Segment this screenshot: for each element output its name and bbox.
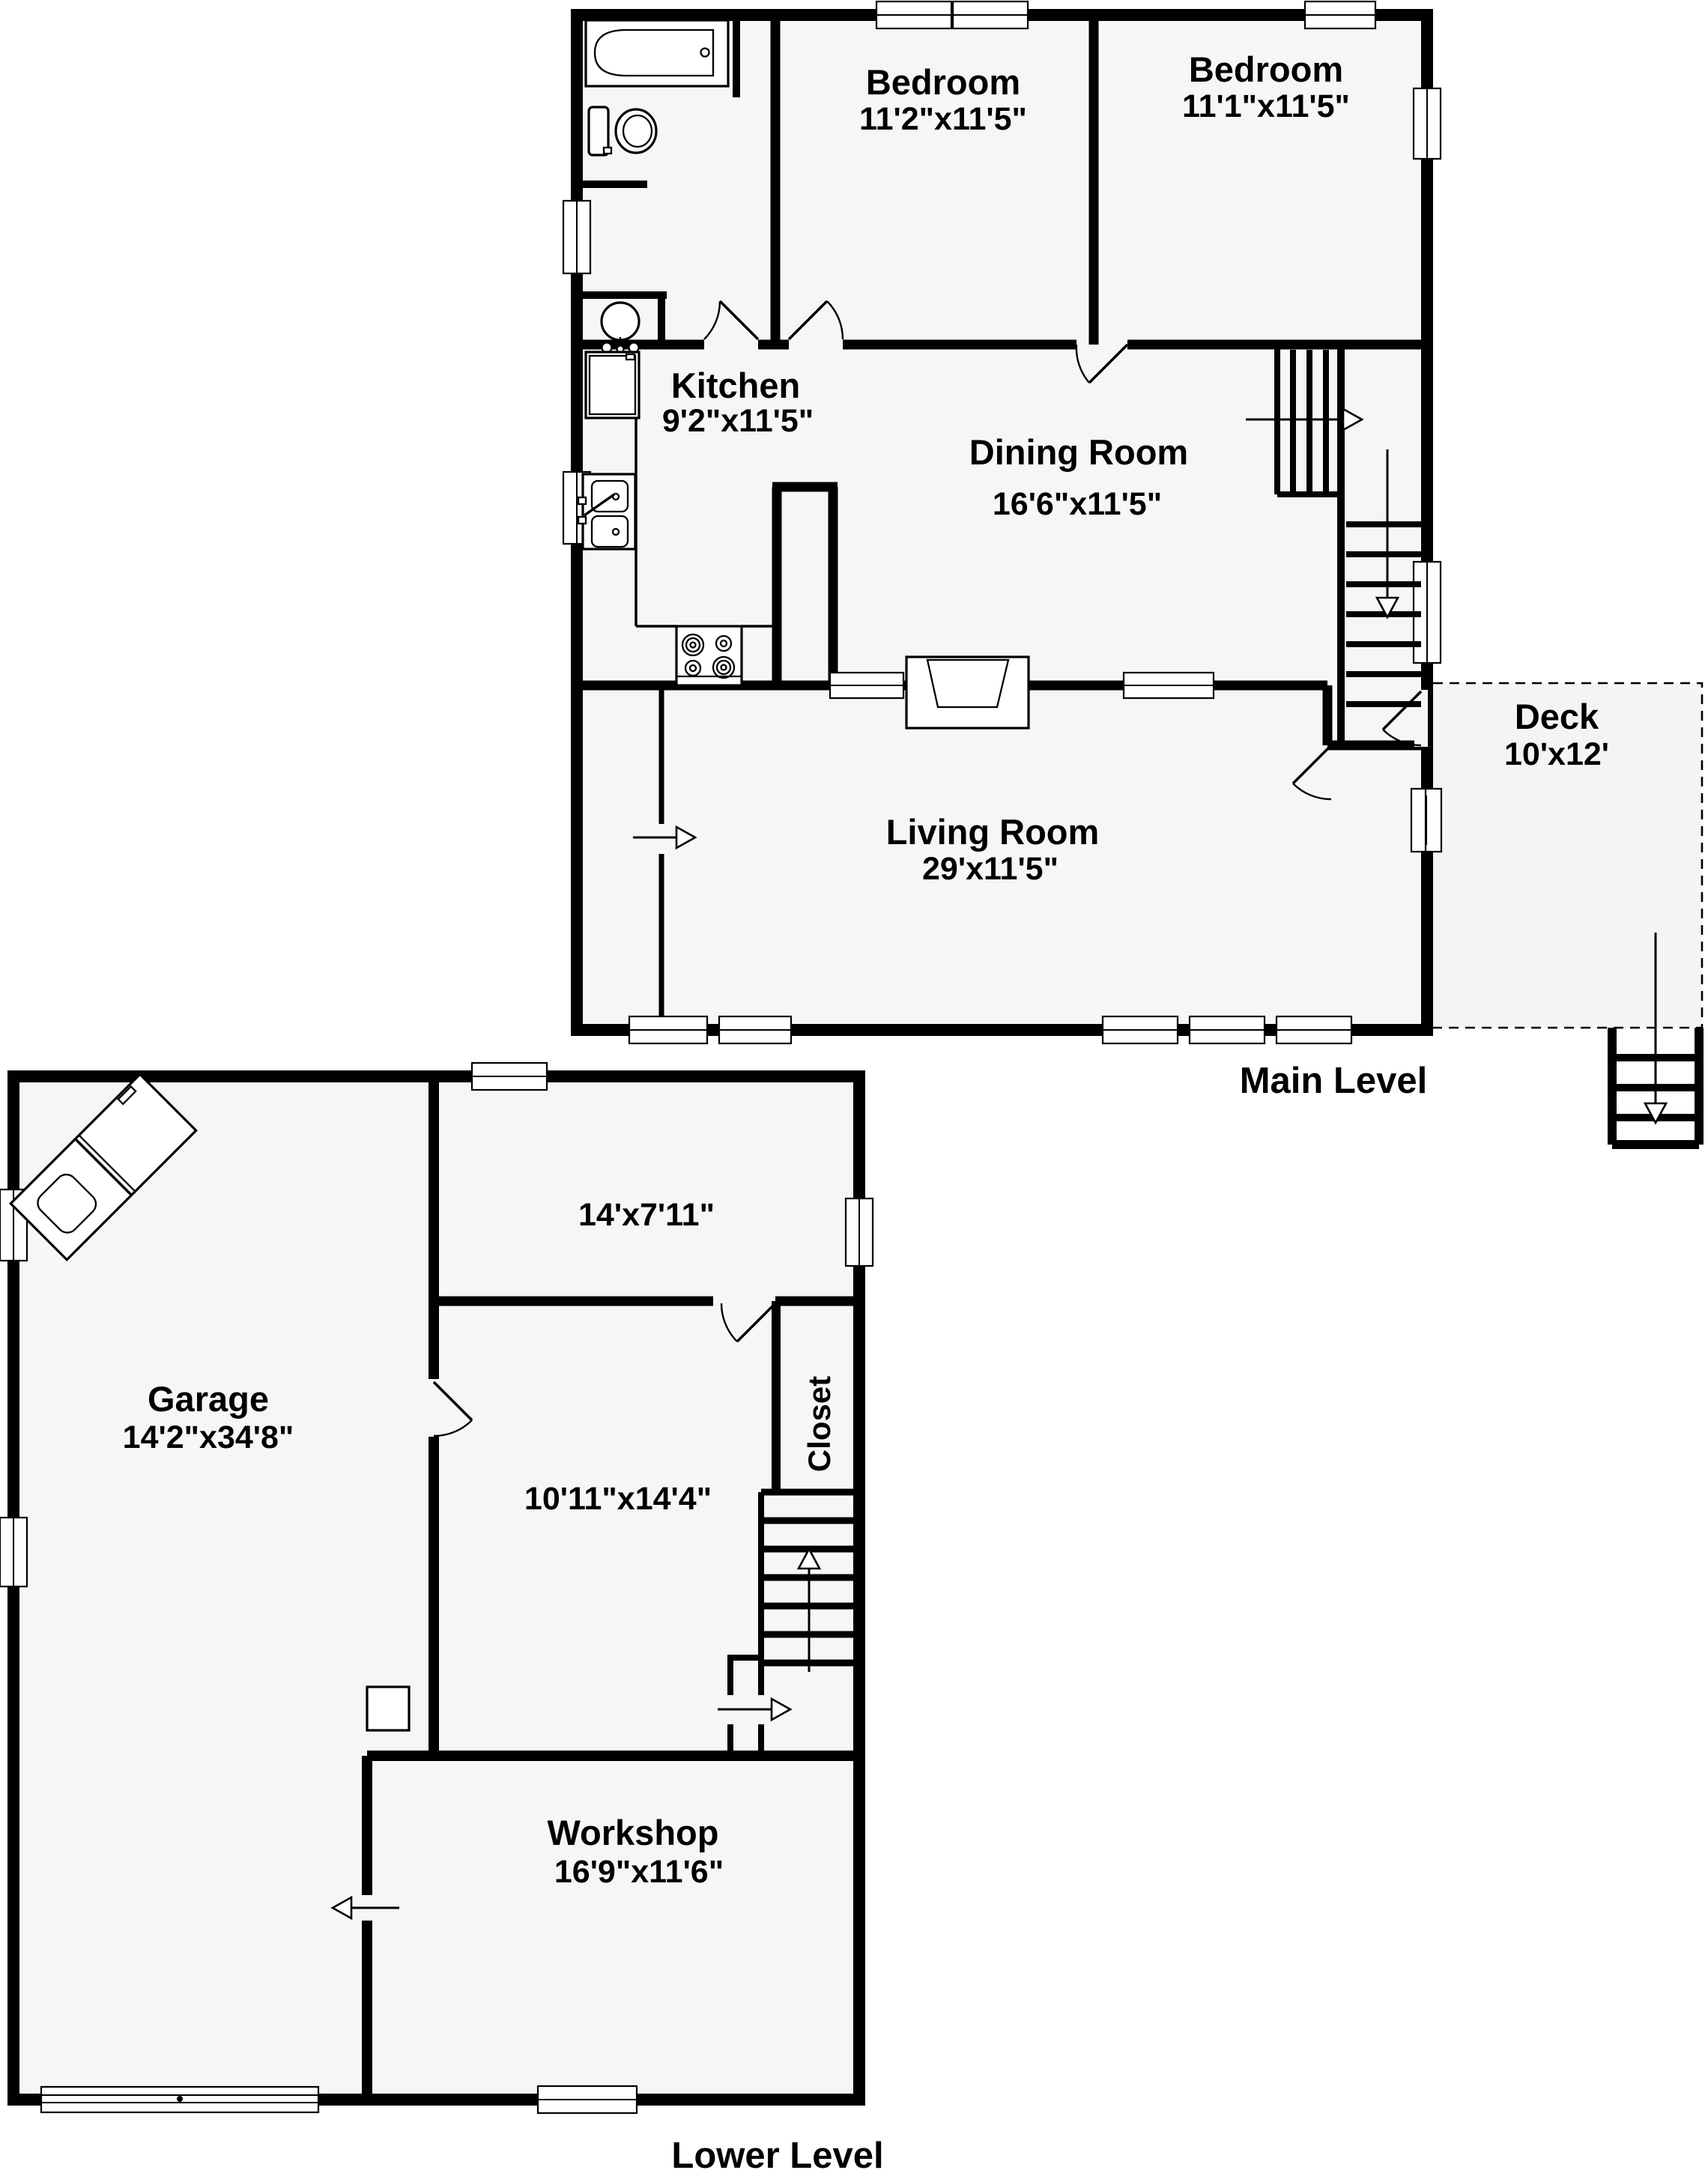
room-name: Dining Room bbox=[969, 432, 1188, 472]
upper-room-dims: 14'x7'11" bbox=[578, 1197, 715, 1233]
window-icon bbox=[846, 1198, 873, 1266]
room-name: Bedroom bbox=[1189, 49, 1343, 89]
refrigerator-icon bbox=[586, 352, 639, 418]
room-name: Bedroom bbox=[866, 62, 1020, 102]
room-bedroom-1: Bedroom 11'2"x11'5" bbox=[859, 62, 1027, 137]
room-kitchen: Kitchen 9'2"x11'5" bbox=[662, 366, 814, 439]
room-dims: 16'9"x11'6" bbox=[554, 1854, 724, 1890]
sliding-door-icon bbox=[1411, 789, 1441, 852]
closet-label: Closet bbox=[802, 1376, 837, 1472]
room-dims: 10'x12' bbox=[1504, 736, 1609, 772]
pedestal-sink-icon bbox=[602, 303, 639, 353]
floorplan-drawing: Bedroom 11'2"x11'5" Bedroom 11'1"x11'5" … bbox=[0, 0, 1708, 2176]
room-dims: 16'6"x11'5" bbox=[993, 486, 1162, 522]
stove-icon bbox=[676, 626, 742, 685]
window-icon bbox=[629, 1016, 707, 1043]
room-dims: 9'2"x11'5" bbox=[662, 403, 814, 439]
window-icon bbox=[472, 1063, 547, 1090]
kitchen-sink-icon bbox=[578, 474, 635, 549]
room-workshop: Workshop 16'9"x11'6" bbox=[548, 1813, 724, 1890]
window-icon bbox=[1305, 1, 1375, 28]
room-name: Living Room bbox=[886, 812, 1100, 852]
room-deck: Deck 10'x12' bbox=[1504, 697, 1609, 772]
wall-opening-icon bbox=[830, 673, 903, 698]
fireplace-icon bbox=[906, 657, 1029, 728]
window-icon bbox=[538, 2086, 637, 2113]
window-icon bbox=[876, 1, 951, 28]
garage-door-icon bbox=[41, 2087, 318, 2112]
wall-opening-icon bbox=[1124, 673, 1214, 698]
window-icon bbox=[0, 1518, 27, 1586]
bathtub-icon bbox=[586, 20, 728, 86]
room-dims: 14'2"x34'8" bbox=[123, 1419, 294, 1455]
floorplan-page: { "colors": { "wall": "#000000", "floor"… bbox=[0, 0, 1708, 2176]
room-dims: 29'x11'5" bbox=[922, 851, 1059, 887]
room-name: Deck bbox=[1515, 697, 1599, 736]
window-icon bbox=[1190, 1016, 1265, 1043]
room-name: Kitchen bbox=[671, 366, 800, 405]
room-bedroom-2: Bedroom 11'1"x11'5" bbox=[1182, 49, 1350, 124]
window-icon bbox=[1414, 88, 1441, 159]
window-icon bbox=[563, 201, 590, 273]
room-garage: Garage 14'2"x34'8" bbox=[123, 1379, 294, 1455]
window-icon bbox=[953, 1, 1028, 28]
window-icon bbox=[1103, 1016, 1178, 1043]
middle-room-dims: 10'11"x14'4" bbox=[524, 1481, 712, 1517]
utility-post bbox=[367, 1687, 409, 1730]
window-icon bbox=[1277, 1016, 1351, 1043]
room-name: Workshop bbox=[548, 1813, 719, 1852]
lower-level-plan: Garage 14'2"x34'8" 14'x7'11" 10'11"x14'4… bbox=[0, 1063, 884, 2176]
main-level-caption: Main Level bbox=[1240, 1061, 1428, 1101]
room-name: Garage bbox=[148, 1379, 269, 1419]
lower-level-caption: Lower Level bbox=[671, 2136, 883, 2176]
room-dims: 11'2"x11'5" bbox=[859, 101, 1027, 137]
toilet-icon bbox=[589, 107, 656, 155]
deck-door-opening bbox=[1414, 690, 1428, 747]
window-icon bbox=[719, 1016, 791, 1043]
room-dims: 11'1"x11'5" bbox=[1182, 88, 1350, 124]
main-level-plan: Bedroom 11'2"x11'5" Bedroom 11'1"x11'5" … bbox=[563, 1, 1702, 1145]
